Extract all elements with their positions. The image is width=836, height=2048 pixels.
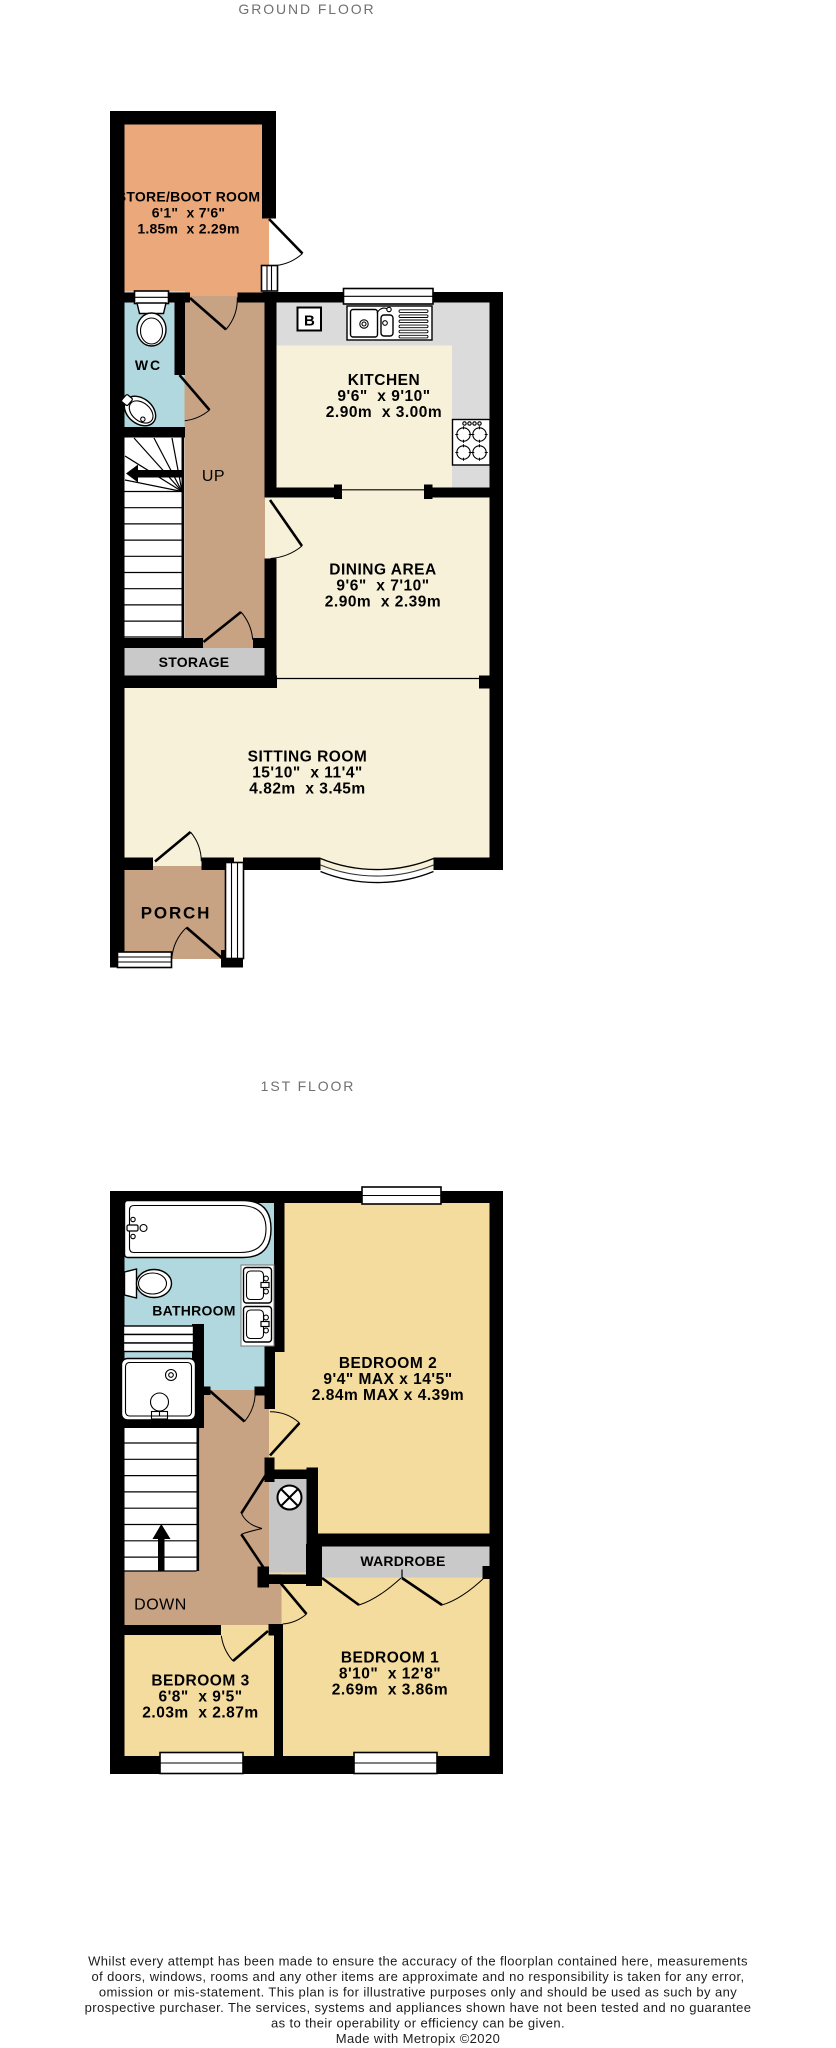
svg-text:of doors, windows, rooms and a: of doors, windows, rooms and any other i…	[92, 1969, 745, 1984]
svg-text:2.90m x 3.00m: 2.90m x 3.00m	[326, 404, 442, 421]
svg-text:B: B	[304, 313, 315, 330]
svg-text:2.90m x 2.39m: 2.90m x 2.39m	[325, 594, 441, 611]
svg-text:PORCH: PORCH	[141, 904, 211, 923]
svg-text:9'4" MAX x 14'5": 9'4" MAX x 14'5"	[323, 1371, 452, 1388]
svg-text:1ST FLOOR: 1ST FLOOR	[261, 1078, 356, 1094]
svg-text:omission or mis-statement. Thi: omission or mis-statement. This plan is …	[99, 1985, 737, 2000]
svg-text:STORAGE: STORAGE	[159, 654, 230, 670]
svg-text:WARDROBE: WARDROBE	[360, 1553, 445, 1569]
svg-text:as to their operability or eff: as to their operability or efficiency ca…	[271, 2016, 565, 2031]
svg-text:GROUND FLOOR: GROUND FLOOR	[238, 1, 375, 17]
svg-text:SITTING ROOM: SITTING ROOM	[248, 749, 368, 766]
svg-text:Whilst every attempt has been: Whilst every attempt has been made to en…	[88, 1954, 748, 1969]
svg-text:prospective purchaser. The ser: prospective purchaser. The services, sys…	[85, 2000, 752, 2015]
svg-text:15'10" x 11'4": 15'10" x 11'4"	[252, 765, 363, 782]
svg-text:DOWN: DOWN	[134, 1597, 187, 1614]
svg-text:2.84m MAX x 4.39m: 2.84m MAX x 4.39m	[312, 1387, 464, 1404]
svg-text:2.03m x 2.87m: 2.03m x 2.87m	[142, 1705, 258, 1722]
svg-text:9'6" x 9'10": 9'6" x 9'10"	[337, 388, 430, 405]
svg-text:BATHROOM: BATHROOM	[152, 1303, 235, 1319]
svg-text:KITCHEN: KITCHEN	[348, 372, 420, 389]
svg-text:Made with Metropix ©2020: Made with Metropix ©2020	[336, 2031, 500, 2046]
svg-text:BEDROOM 3: BEDROOM 3	[151, 1673, 249, 1690]
svg-text:9'6" x 7'10": 9'6" x 7'10"	[336, 578, 429, 595]
svg-text:BEDROOM 1: BEDROOM 1	[341, 1650, 439, 1667]
svg-text:UP: UP	[202, 468, 225, 485]
svg-text:BEDROOM 2: BEDROOM 2	[339, 1355, 437, 1372]
svg-text:STORE/BOOT ROOM: STORE/BOOT ROOM	[117, 189, 261, 205]
svg-text:4.82m x 3.45m: 4.82m x 3.45m	[249, 781, 365, 798]
svg-text:6'8" x 9'5": 6'8" x 9'5"	[158, 1689, 242, 1706]
svg-text:DINING AREA: DINING AREA	[329, 562, 436, 579]
svg-text:8'10" x 12'8": 8'10" x 12'8"	[339, 1666, 441, 1683]
svg-text:6'1" x 7'6": 6'1" x 7'6"	[152, 205, 226, 221]
svg-text:2.69m x 3.86m: 2.69m x 3.86m	[332, 1682, 448, 1699]
svg-text:WC: WC	[135, 357, 162, 373]
svg-text:1.85m x 2.29m: 1.85m x 2.29m	[137, 221, 239, 237]
